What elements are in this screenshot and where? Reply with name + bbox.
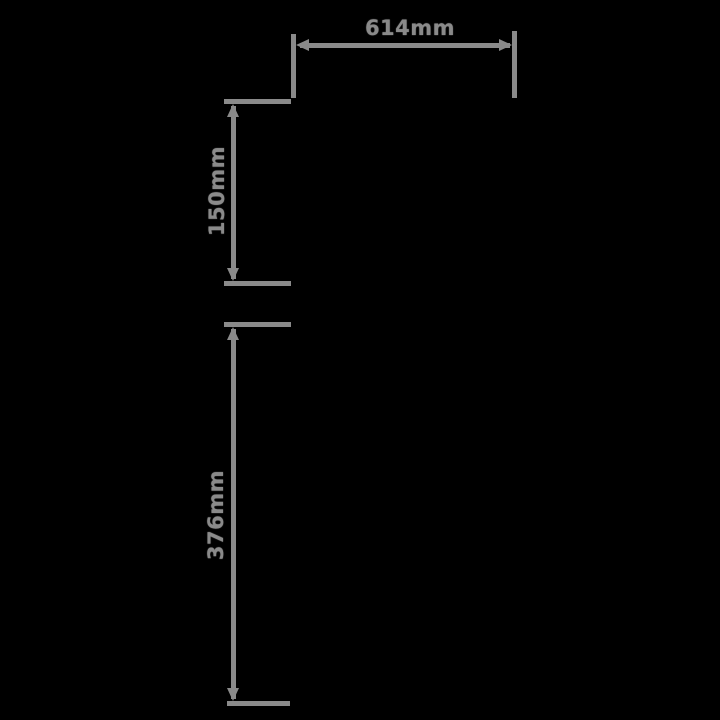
upper-height-dimension-label: 150mm	[205, 131, 229, 251]
width-arrow-right-icon	[499, 39, 512, 51]
upper-height-arrow-down-icon	[227, 268, 239, 281]
upper-height-dimension-line	[231, 106, 236, 279]
width-dimension-line	[300, 43, 510, 48]
width-dimension-label: 614mm	[340, 16, 480, 40]
dimension-drawing-canvas: 614mm 150mm 376mm	[0, 0, 720, 720]
width-extension-line-right	[512, 31, 517, 98]
width-arrow-left-icon	[296, 39, 309, 51]
lower-height-dimension-line	[231, 329, 236, 699]
upper-height-arrow-up-icon	[227, 104, 239, 117]
lower-height-tick-bottom	[227, 701, 290, 706]
lower-height-arrow-up-icon	[227, 327, 239, 340]
lower-height-arrow-down-icon	[227, 688, 239, 701]
upper-height-tick-bottom	[224, 281, 291, 286]
lower-height-dimension-label: 376mm	[204, 455, 228, 575]
